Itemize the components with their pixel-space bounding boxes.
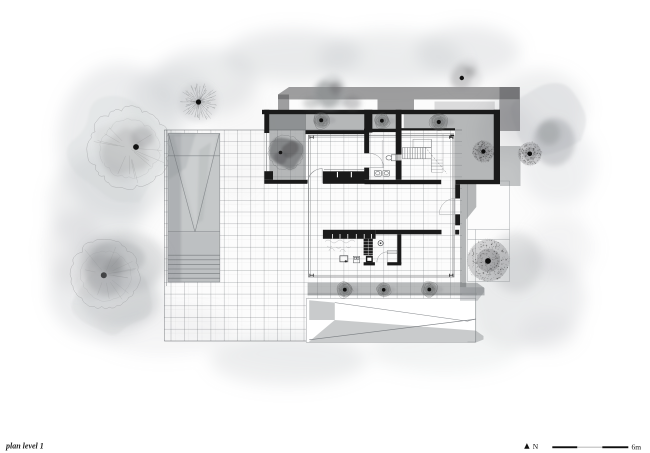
svg-text:plan level 1: plan level 1 <box>5 442 44 451</box>
svg-text:6m: 6m <box>632 443 642 452</box>
svg-text:N: N <box>533 442 539 451</box>
